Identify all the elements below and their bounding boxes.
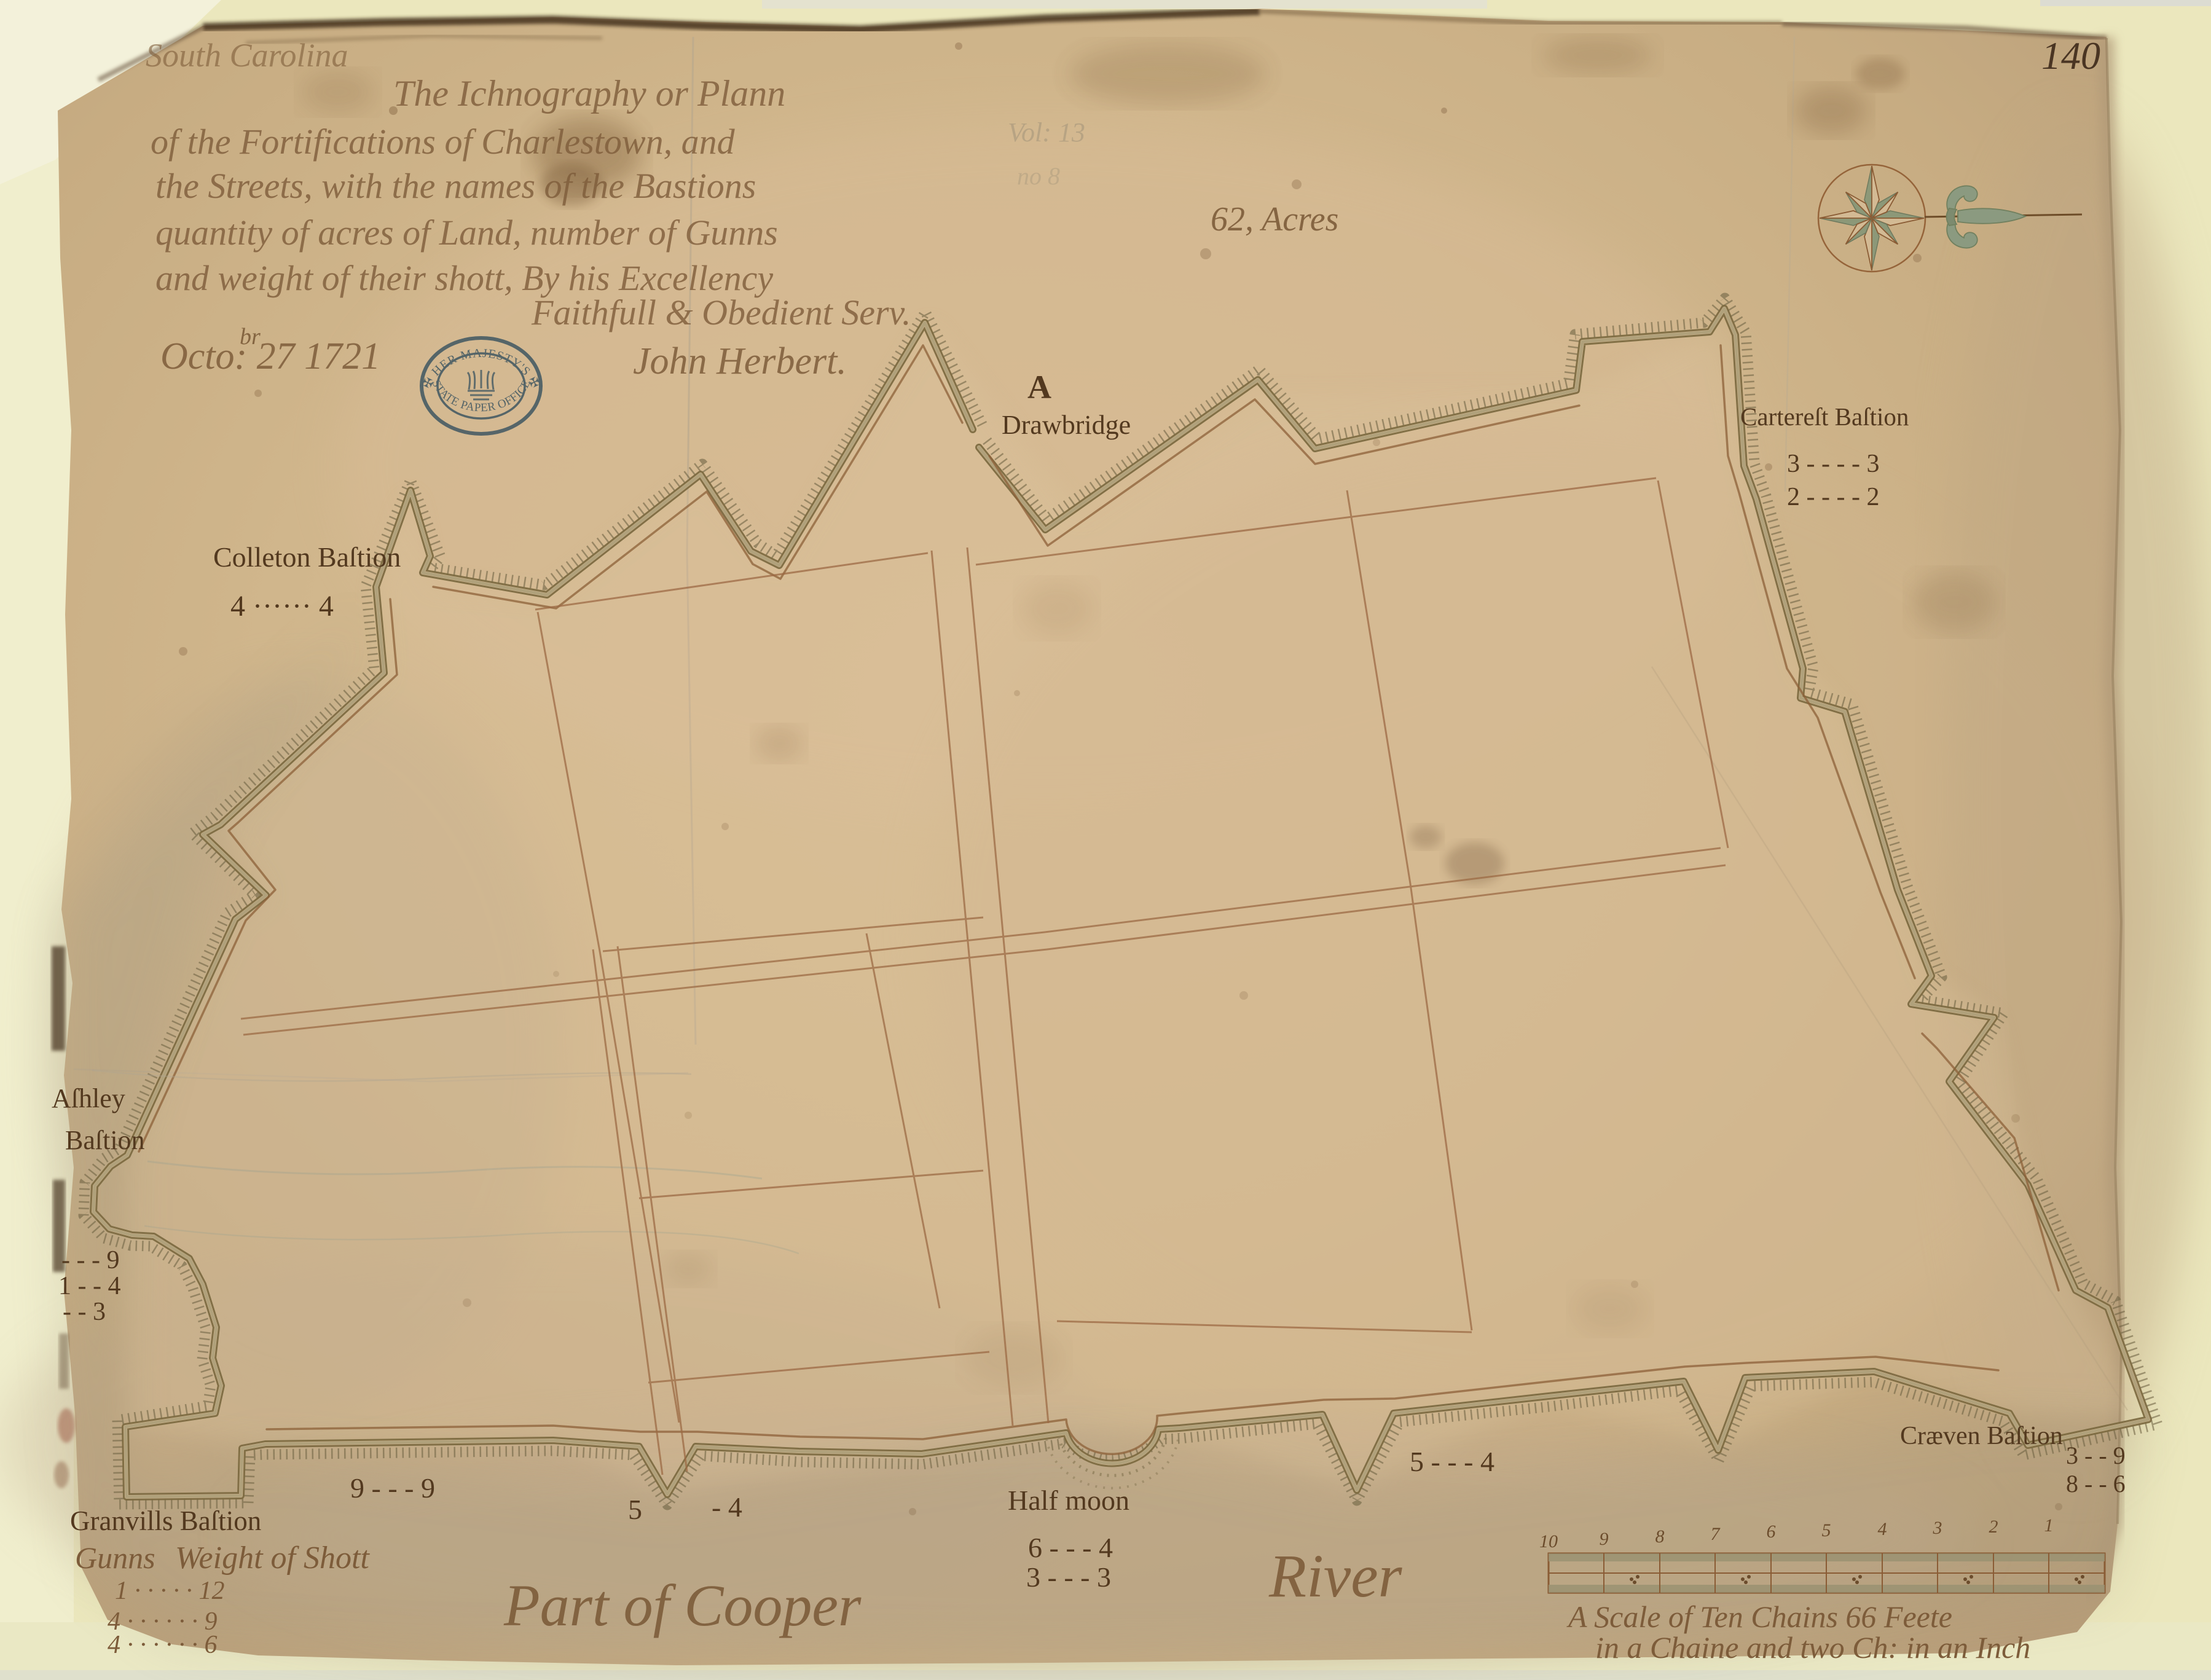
svg-text:Baſtion: Baſtion xyxy=(65,1125,145,1155)
svg-text:Granvills Baſtion: Granvills Baſtion xyxy=(70,1505,261,1536)
svg-text:9: 9 xyxy=(1600,1529,1609,1549)
svg-text:4 · · · · · · 6: 4 · · · · · · 6 xyxy=(108,1631,218,1659)
svg-text:Half moon: Half moon xyxy=(1008,1485,1129,1516)
svg-text:2: 2 xyxy=(1989,1517,1998,1537)
svg-text:5: 5 xyxy=(1822,1520,1831,1541)
svg-text:3 - - 9: 3 - - 9 xyxy=(2066,1442,2126,1469)
svg-text:Aſhley: Aſhley xyxy=(52,1083,125,1113)
svg-text:Weight of Shott: Weight of Shott xyxy=(175,1541,370,1576)
svg-text:1 - - 4: 1 - - 4 xyxy=(58,1272,120,1300)
svg-text:4: 4 xyxy=(1878,1519,1887,1539)
svg-text:South Carolina: South Carolina xyxy=(146,37,348,74)
svg-text:br: br xyxy=(240,324,261,350)
svg-text:Cræven Baſtion: Cræven Baſtion xyxy=(1900,1422,2063,1450)
svg-text:2 - - - - 2: 2 - - - - 2 xyxy=(1787,483,1879,511)
svg-text:Colleton Baſtion: Colleton Baſtion xyxy=(213,541,401,573)
svg-text:no 8: no 8 xyxy=(1017,162,1060,190)
svg-text:3: 3 xyxy=(1933,1518,1942,1538)
svg-text:Gunns: Gunns xyxy=(75,1541,155,1575)
svg-text:A Scale of Ten Chains 66 Feete: A Scale of Ten Chains 66 Feete xyxy=(1566,1600,1952,1634)
svg-text:John Herbert.: John Herbert. xyxy=(633,340,847,382)
svg-text:4 ······ 4: 4 ······ 4 xyxy=(230,590,334,622)
svg-text:- - 3: - - 3 xyxy=(63,1298,106,1326)
svg-text:Cartereſt Baſtion: Cartereſt Baſtion xyxy=(1740,402,1909,431)
svg-text:1: 1 xyxy=(2044,1515,2054,1536)
svg-text:5: 5 xyxy=(628,1494,642,1525)
svg-text:5 - - - 4: 5 - - - 4 xyxy=(1410,1446,1494,1477)
svg-text:6 - - - 4: 6 - - - 4 xyxy=(1028,1532,1113,1563)
svg-text:River: River xyxy=(1268,1542,1403,1610)
svg-text:Vol: 13: Vol: 13 xyxy=(1008,117,1085,147)
svg-text:- 4: - 4 xyxy=(712,1491,742,1523)
svg-text:the Streets, with the names of: the Streets, with the names of the Basti… xyxy=(155,166,756,206)
svg-text:quantity of acres of Land, num: quantity of acres of Land, number of Gun… xyxy=(155,213,778,253)
svg-text:6: 6 xyxy=(1767,1521,1776,1542)
svg-text:Faithfull & Obedient Serv.: Faithfull & Obedient Serv. xyxy=(531,292,911,332)
svg-text:The Ichnography or Plann: The Ichnography or Plann xyxy=(393,73,785,114)
svg-text:9 - - - 9: 9 - - - 9 xyxy=(350,1472,435,1504)
svg-text:3 - - - 3: 3 - - - 3 xyxy=(1026,1561,1111,1593)
svg-text:3 - - - - 3: 3 - - - - 3 xyxy=(1787,450,1879,478)
svg-text:7: 7 xyxy=(1711,1524,1721,1544)
svg-text:in a Chaine and two Ch: in an: in a Chaine and two Ch: in an Inch xyxy=(1595,1630,2030,1665)
svg-text:1 · · · · · 12: 1 · · · · · 12 xyxy=(115,1577,225,1605)
svg-text:8: 8 xyxy=(1655,1526,1665,1547)
svg-text:10: 10 xyxy=(1539,1531,1558,1552)
svg-text:140: 140 xyxy=(2041,34,2100,77)
svg-text:62, Acres: 62, Acres xyxy=(1211,200,1338,238)
svg-text:- - - 9: - - - 9 xyxy=(61,1246,119,1274)
svg-text:A: A xyxy=(1027,369,1051,406)
svg-text:Octo: 27 1721: Octo: 27 1721 xyxy=(160,336,380,377)
svg-text:Part of Cooper: Part of Cooper xyxy=(503,1572,862,1638)
svg-text:of the Fortifications of Charl: of the Fortifications of Charlestown, an… xyxy=(151,122,736,162)
svg-text:Drawbridge: Drawbridge xyxy=(1002,410,1131,440)
svg-text:8 - - 6: 8 - - 6 xyxy=(2066,1470,2126,1497)
